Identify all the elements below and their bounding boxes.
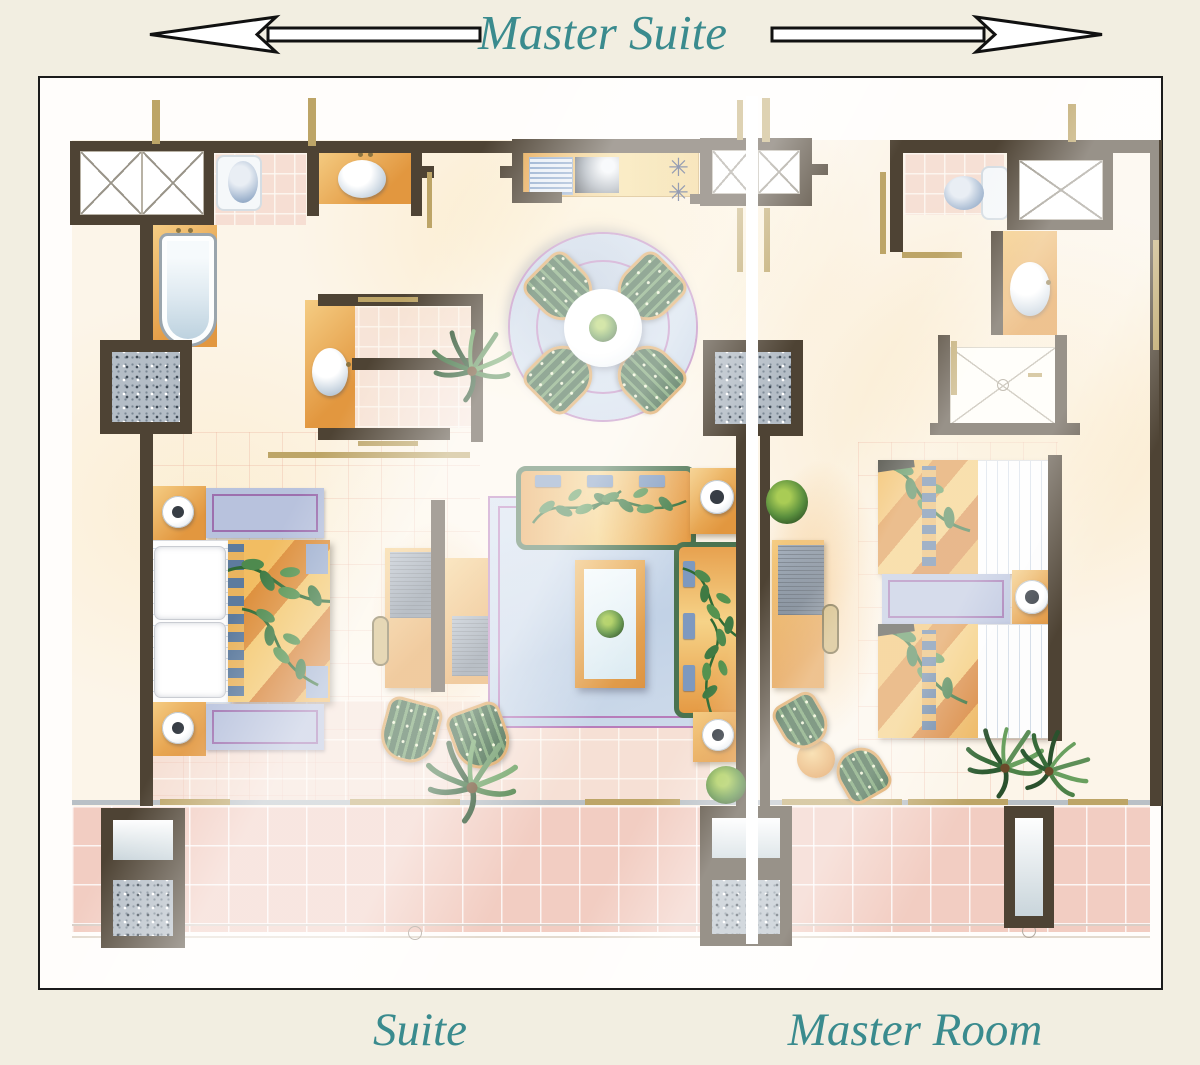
wall-stub <box>812 164 828 175</box>
bedspread <box>878 460 978 574</box>
shower-pan <box>112 352 180 422</box>
bed-bench <box>206 488 324 538</box>
wall-stub <box>500 166 512 178</box>
sink-basin <box>312 348 348 396</box>
door-leaf <box>268 452 470 458</box>
king-bed <box>150 540 330 702</box>
wall-stub <box>308 98 316 146</box>
centerpiece-plant-icon <box>589 314 617 342</box>
toilet-bowl <box>944 176 984 210</box>
wall-segment <box>307 146 319 216</box>
wall-stub <box>762 98 770 142</box>
door-leaf <box>358 441 418 446</box>
stove-burner-icon: ✳ <box>668 180 689 205</box>
pillow <box>154 546 226 620</box>
wall-stub <box>737 100 743 140</box>
wall-segment <box>214 141 512 153</box>
wall-segment <box>140 223 153 343</box>
balcony-door-threshold <box>1068 799 1128 805</box>
planter <box>113 820 173 860</box>
sofa <box>516 466 696 550</box>
toilet-seat <box>981 166 1009 220</box>
wall-segment <box>140 432 153 806</box>
wall-segment <box>512 192 562 203</box>
spread-fold <box>922 466 936 566</box>
wardrobe-door-icon <box>80 151 142 215</box>
tv-wall <box>431 500 445 692</box>
table-lamp-icon <box>1015 580 1049 614</box>
wardrobe-door-icon <box>758 150 800 194</box>
potted-plant-icon <box>706 766 746 804</box>
door-leaf <box>902 252 962 258</box>
wall-stub <box>1068 104 1076 142</box>
bedspread <box>878 624 978 738</box>
shower-handle-icon <box>1028 373 1042 377</box>
pillow <box>154 622 226 698</box>
table-lamp-icon <box>162 712 194 744</box>
palm-plant-icon <box>432 328 512 408</box>
wall-segment <box>1055 335 1067 435</box>
wall-segment <box>938 335 950 435</box>
desk-chair <box>372 616 389 666</box>
stove-burner-icon: ✳ <box>668 155 689 180</box>
bed-bench <box>206 704 324 750</box>
nightstand <box>882 574 1010 624</box>
bench-outline <box>212 494 318 532</box>
wall-segment <box>411 146 422 216</box>
demising-wall <box>736 436 746 806</box>
wardrobe-door-icon <box>1019 160 1103 220</box>
page-title: Master Suite <box>430 0 775 66</box>
balcony-door-threshold <box>782 799 902 805</box>
faucet-icon <box>188 228 193 233</box>
wall-stub <box>152 100 160 144</box>
spread-fold <box>922 630 936 730</box>
wall-segment <box>991 231 1003 335</box>
wall-segment <box>318 428 450 440</box>
table-lamp-icon <box>702 719 734 751</box>
floor-plan-page: Master Suite <box>0 0 1200 1065</box>
wardrobe-door-icon <box>142 151 204 215</box>
wardrobe-door-icon <box>712 150 750 194</box>
palm-plant-icon <box>424 738 520 830</box>
demising-wall-gap <box>746 96 758 944</box>
faucet-icon <box>1046 280 1051 285</box>
table-plant-icon <box>596 610 624 638</box>
door-leaf <box>358 297 418 302</box>
door-leaf <box>880 172 886 254</box>
suite-wardrobe <box>80 151 204 215</box>
balcony-door-threshold <box>160 799 230 805</box>
table-lamp-icon <box>162 496 194 528</box>
shower-drain <box>997 379 1009 391</box>
faucet-icon <box>346 362 351 367</box>
potted-plant-icon <box>766 480 808 524</box>
door-leaf <box>427 172 432 228</box>
balcony-edge-line <box>72 924 1150 926</box>
twin-bed <box>878 624 1048 738</box>
bed-head-wall <box>1048 455 1062 741</box>
sink-basin <box>1010 262 1050 316</box>
twin-bed <box>878 460 1048 574</box>
door-leaf <box>951 341 957 395</box>
right-arrow-icon <box>768 14 1106 56</box>
window-strip <box>1153 240 1159 350</box>
kitchen-sink <box>575 157 619 193</box>
tv-icon <box>390 552 434 618</box>
suite-label: Suite <box>320 998 520 1062</box>
planter <box>1015 818 1043 916</box>
faucet-icon <box>176 228 181 233</box>
door-leaf <box>737 208 743 272</box>
balcony-door-threshold <box>585 799 680 805</box>
bench-outline <box>212 710 318 744</box>
sink-basin <box>338 160 386 198</box>
balcony-drain <box>408 926 422 940</box>
bedspread <box>228 540 330 702</box>
table-lamp-icon <box>700 480 734 514</box>
tv-icon <box>778 545 824 615</box>
door-leaf <box>764 208 770 272</box>
master-room-label: Master Room <box>740 998 1090 1062</box>
tv-icon <box>452 616 490 676</box>
desk-chair <box>822 604 839 654</box>
kitchen-drainboard <box>529 157 573 195</box>
nightstand-outline <box>888 580 1004 618</box>
bathtub <box>159 233 217 347</box>
planter <box>113 880 173 936</box>
wall-segment <box>890 140 903 252</box>
toilet-bowl <box>228 161 258 203</box>
balcony-floor <box>72 806 1150 932</box>
balcony-edge-line <box>72 936 1150 938</box>
